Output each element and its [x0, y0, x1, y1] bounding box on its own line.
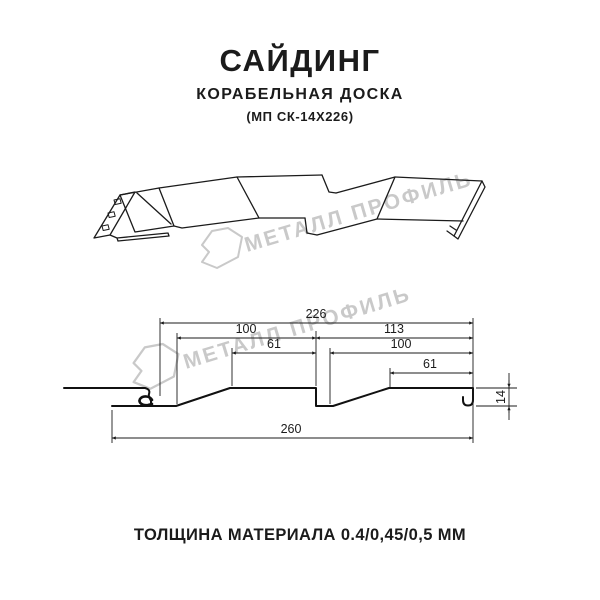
- dim-right-span: 113: [384, 322, 404, 336]
- board1-face: [237, 175, 322, 218]
- dimension-lines: [112, 323, 509, 438]
- metall-profil-logo-icon: [202, 228, 242, 268]
- thickness-note: ТОЛЩИНА МАТЕРИАЛА 0.4/0,45/0,5 ММ: [0, 526, 600, 545]
- witness-lines: [112, 318, 517, 443]
- lock-hem: [110, 233, 169, 241]
- product-drawing-page: САЙДИНГ КОРАБЕЛЬНАЯ ДОСКА (МП СК-14Х226)…: [0, 0, 600, 600]
- watermark-text: МЕТАЛЛ ПРОФИЛЬ: [181, 283, 414, 374]
- section-top-left-edge: [64, 388, 151, 404]
- technical-drawing: МЕТАЛЛ ПРОФИЛЬ МЕТАЛЛ ПРОФИЛЬ: [0, 0, 600, 600]
- dim-total-width: 260: [281, 422, 302, 436]
- nail-strip-holes: [102, 199, 121, 231]
- dim-right-inner: 100: [391, 337, 412, 351]
- lock-channel: [120, 188, 174, 232]
- dim-height: 14: [494, 390, 508, 404]
- section-profile-outline: [112, 388, 473, 406]
- metall-profil-watermark-bottom: МЕТАЛЛ ПРОФИЛЬ: [134, 283, 414, 389]
- dim-right-flat: 61: [423, 357, 437, 371]
- dim-top-width: 226: [306, 307, 327, 321]
- metall-profil-watermark-top: МЕТАЛЛ ПРОФИЛЬ: [202, 168, 475, 268]
- dim-left-flat: 61: [267, 337, 281, 351]
- metall-profil-logo-icon: [134, 344, 179, 389]
- dim-left-span: 100: [236, 322, 257, 336]
- board1-riser: [159, 177, 259, 228]
- watermark-text: МЕТАЛЛ ПРОФИЛЬ: [242, 168, 476, 257]
